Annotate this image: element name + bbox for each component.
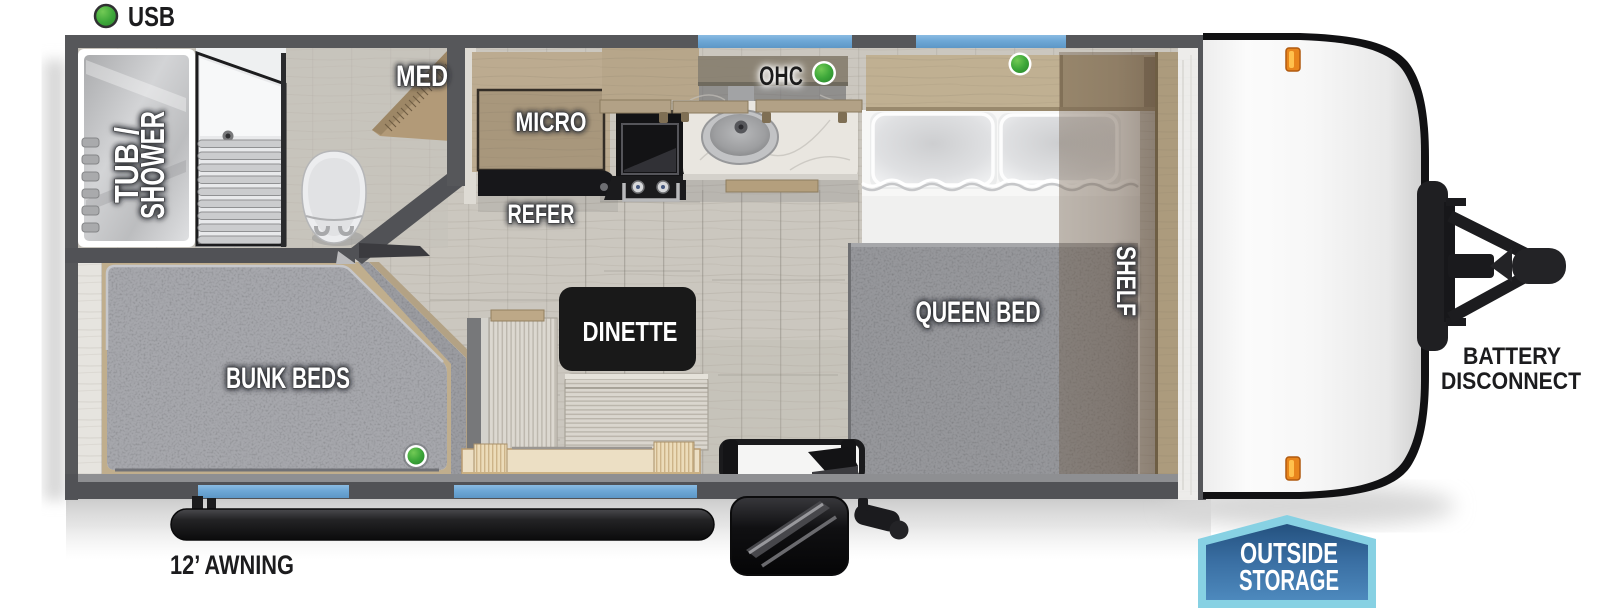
svg-text:QUEEN BED: QUEEN BED <box>916 296 1041 329</box>
svg-text:USB: USB <box>128 1 175 32</box>
svg-text:SHELF: SHELF <box>1111 246 1141 316</box>
svg-text:MICRO: MICRO <box>516 107 587 137</box>
svg-text:BUNK BEDS: BUNK BEDS <box>226 362 350 395</box>
svg-text:BATTERY: BATTERY <box>1463 343 1561 370</box>
svg-text:OHC: OHC <box>759 61 803 91</box>
svg-text:DISCONNECT: DISCONNECT <box>1441 368 1581 395</box>
svg-text:DINETTE: DINETTE <box>583 316 678 347</box>
svg-text:12’ AWNING: 12’ AWNING <box>170 550 294 580</box>
svg-text:MED: MED <box>396 60 448 93</box>
svg-text:STORAGE: STORAGE <box>1239 565 1339 597</box>
svg-text:REFER: REFER <box>508 199 575 229</box>
svg-text:TUB /SHOWER: TUB /SHOWER <box>108 111 171 219</box>
